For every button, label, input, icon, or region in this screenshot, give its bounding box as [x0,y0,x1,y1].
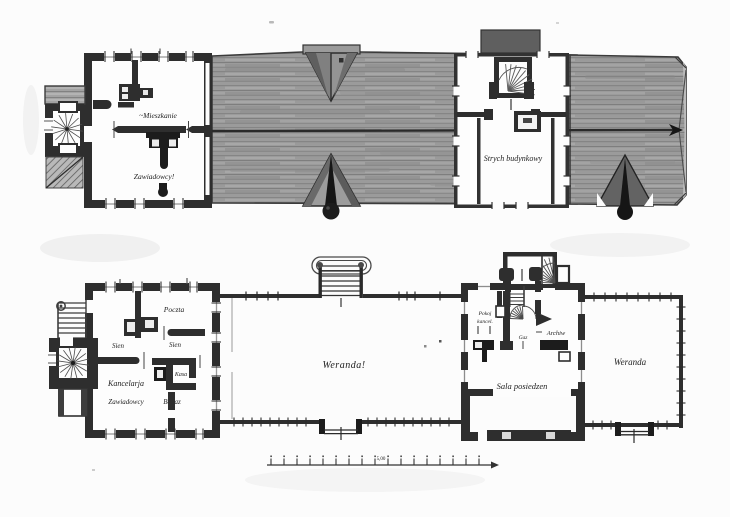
svg-text:5,00: 5,00 [377,457,386,462]
svg-text:Zawiadowcy: Zawiadowcy [108,398,144,406]
svg-text:Sala posiedzen: Sala posiedzen [497,381,548,391]
svg-text:Archiw: Archiw [546,330,566,337]
svg-text:Sien: Sien [112,342,125,350]
svg-text:Kasa: Kasa [174,372,187,378]
svg-text:Gaz: Gaz [519,335,529,341]
svg-text:Weranda!: Weranda! [322,360,365,371]
svg-text:Pokoj: Pokoj [478,311,492,317]
svg-text:kancel.: kancel. [477,319,493,325]
svg-text:Zawiadowcy!: Zawiadowcy! [134,172,175,181]
svg-text:Strych budynkowy: Strych budynkowy [484,154,543,163]
svg-text:Poczta: Poczta [163,305,185,314]
svg-text:Sien: Sien [169,341,182,349]
svg-text:Weranda: Weranda [614,357,647,367]
svg-text:Kancelarja: Kancelarja [107,379,144,388]
svg-text:~Mieszkanie: ~Mieszkanie [139,111,177,120]
